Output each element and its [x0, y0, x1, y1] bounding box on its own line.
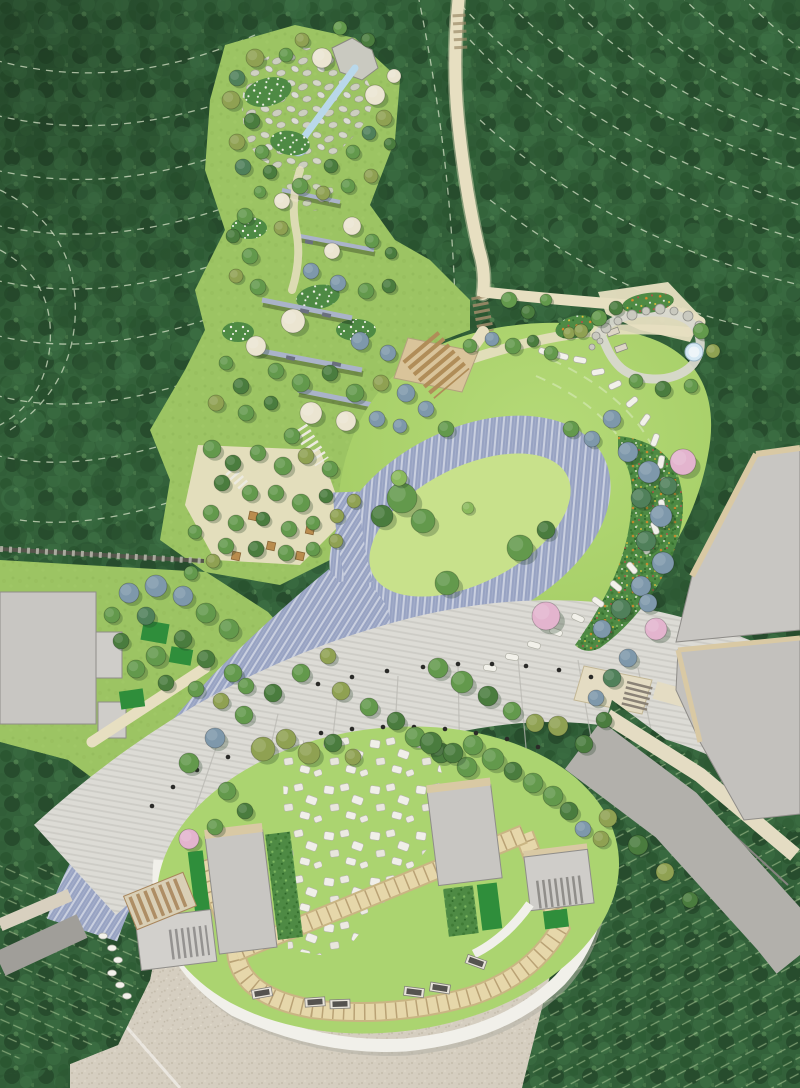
stepping-stone	[114, 957, 123, 963]
boulder	[670, 307, 678, 315]
site-plan-rendering	[0, 0, 800, 1088]
boulder	[614, 317, 622, 325]
bollard	[474, 731, 479, 736]
stepping-stone	[123, 993, 132, 999]
boulder	[655, 304, 665, 314]
bench	[330, 999, 350, 1009]
bollard	[171, 785, 176, 790]
west-building-roof	[0, 592, 96, 724]
boulder	[589, 344, 595, 350]
bollard	[381, 725, 386, 730]
boulder	[627, 310, 637, 320]
picnic-table	[266, 541, 275, 550]
bollard	[557, 668, 562, 673]
bollard	[443, 727, 448, 732]
bollard	[385, 669, 390, 674]
bollard	[589, 675, 594, 680]
east-pavilion-roof	[427, 784, 502, 885]
boulder	[683, 311, 693, 321]
bollard	[350, 675, 355, 680]
site-plan-stage	[0, 0, 800, 1088]
bollard	[350, 727, 355, 732]
bollard	[456, 662, 461, 667]
boulder	[642, 307, 650, 315]
boulder	[597, 338, 603, 344]
bollard	[536, 745, 541, 750]
stepping-stone	[108, 970, 117, 976]
bollard	[524, 664, 529, 669]
bollard	[226, 755, 231, 760]
plaza-hedge-east	[543, 909, 569, 930]
east-stair-building	[523, 843, 594, 910]
bollard	[490, 662, 495, 667]
stepping-stone	[108, 945, 117, 951]
bollard	[421, 665, 426, 670]
bench	[305, 997, 326, 1007]
stepping-stone	[116, 982, 125, 988]
bollard	[505, 737, 510, 742]
bollard	[150, 804, 155, 809]
bench	[404, 986, 425, 997]
stepping-stone	[99, 933, 108, 939]
bollard	[319, 731, 324, 736]
bollard	[316, 682, 321, 687]
